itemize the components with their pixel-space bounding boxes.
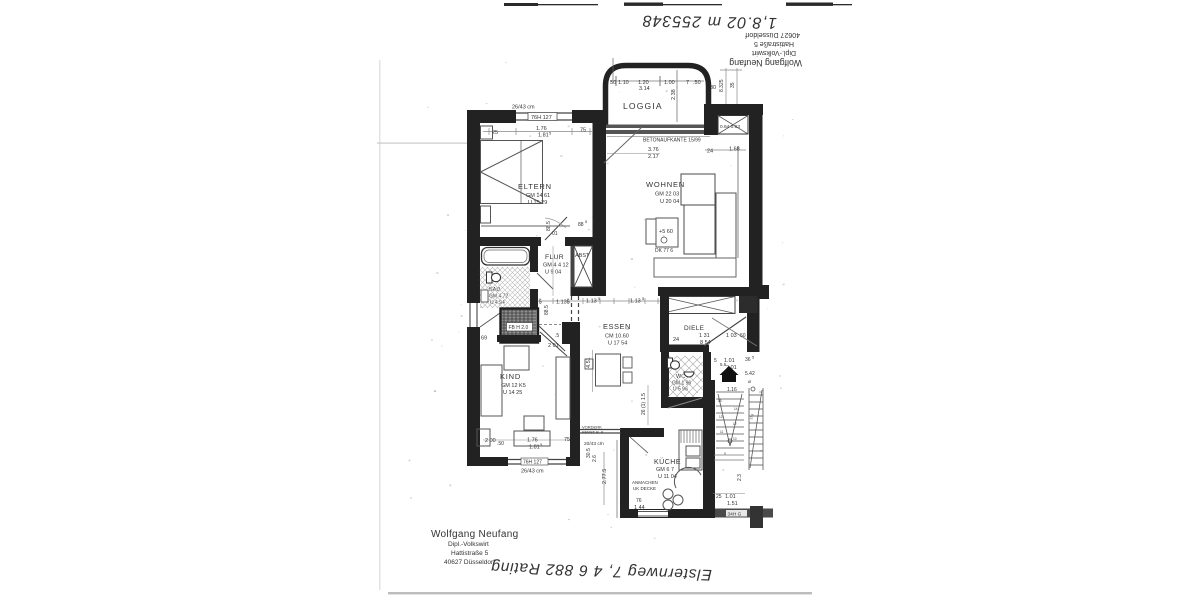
svg-text:FLUR: FLUR bbox=[545, 254, 564, 261]
svg-text:3.14: 3.14 bbox=[639, 86, 650, 92]
svg-text:ANMACHEN: ANMACHEN bbox=[632, 480, 658, 485]
svg-text:40627 Düsseldorf: 40627 Düsseldorf bbox=[745, 31, 800, 38]
svg-text:5: 5 bbox=[539, 300, 542, 306]
svg-text:1.13: 1.13 bbox=[586, 299, 597, 305]
svg-text:76: 76 bbox=[636, 498, 642, 504]
svg-text:88.5: 88.5 bbox=[544, 305, 550, 315]
svg-text:24: 24 bbox=[707, 149, 713, 155]
svg-text:8 54: 8 54 bbox=[700, 340, 711, 346]
svg-text:Wolfgang Neufang: Wolfgang Neufang bbox=[431, 529, 518, 540]
svg-text:26/43 cm: 26/43 cm bbox=[521, 469, 544, 475]
svg-text:Hattistraße 5: Hattistraße 5 bbox=[754, 40, 794, 47]
svg-text:9: 9 bbox=[724, 452, 726, 456]
svg-text:2.6: 2.6 bbox=[592, 455, 598, 462]
svg-text:Wolfgang Neufang: Wolfgang Neufang bbox=[729, 58, 802, 68]
svg-text:FENST B. K: FENST B. K bbox=[582, 430, 604, 435]
svg-text:.50: .50 bbox=[497, 441, 504, 447]
svg-text:1.00: 1.00 bbox=[664, 80, 675, 86]
svg-text:11: 11 bbox=[720, 430, 724, 434]
svg-text:26/43 cm: 26/43 cm bbox=[512, 105, 535, 111]
svg-text:8.325: 8.325 bbox=[719, 79, 725, 92]
svg-text:26 (1): 26 (1) bbox=[641, 402, 647, 415]
svg-text:0.64 0.63: 0.64 0.63 bbox=[720, 124, 740, 130]
svg-text:1.13: 1.13 bbox=[630, 299, 641, 305]
svg-text:BETONAUFKANTE 15/99: BETONAUFKANTE 15/99 bbox=[643, 138, 701, 144]
svg-text:88: 88 bbox=[578, 222, 584, 228]
svg-text:WOHNEN: WOHNEN bbox=[646, 180, 685, 189]
svg-text:5.42: 5.42 bbox=[745, 371, 755, 377]
svg-text:U 11 04: U 11 04 bbox=[658, 474, 677, 480]
svg-text:1.01: 1.01 bbox=[725, 494, 736, 500]
svg-text:7: 7 bbox=[686, 80, 689, 86]
svg-text:CM 10.60: CM 10.60 bbox=[605, 334, 629, 340]
svg-text:U 17 54: U 17 54 bbox=[608, 341, 627, 347]
svg-text:75: 75 bbox=[564, 437, 570, 443]
svg-text:1.5: 1.5 bbox=[641, 393, 647, 400]
svg-text:U 20 04: U 20 04 bbox=[660, 199, 679, 205]
svg-text:13: 13 bbox=[719, 415, 723, 419]
svg-text:50: 50 bbox=[610, 80, 616, 86]
svg-text:+5 60: +5 60 bbox=[659, 229, 673, 235]
svg-text:.50: .50 bbox=[693, 80, 701, 86]
svg-text:30: 30 bbox=[710, 85, 716, 91]
svg-text:24: 24 bbox=[673, 337, 679, 343]
svg-text:5: 5 bbox=[714, 358, 717, 364]
svg-text:1.01: 1.01 bbox=[724, 358, 735, 364]
svg-text:15: 15 bbox=[718, 399, 722, 403]
svg-text:20/43 cm: 20/43 cm bbox=[584, 441, 604, 447]
svg-text:U 14 25: U 14 25 bbox=[503, 390, 522, 396]
svg-text:34H G: 34H G bbox=[728, 512, 742, 518]
svg-text:3.76: 3.76 bbox=[648, 147, 659, 153]
svg-text:1.81: 1.81 bbox=[538, 133, 549, 139]
svg-text:69: 69 bbox=[481, 336, 487, 342]
svg-text:10: 10 bbox=[733, 437, 737, 441]
svg-text:01: 01 bbox=[552, 231, 558, 237]
svg-text:1.76: 1.76 bbox=[527, 438, 538, 444]
svg-text:KÜCHE: KÜCHE bbox=[654, 458, 681, 466]
svg-text:1.51: 1.51 bbox=[727, 501, 738, 507]
svg-text:2.77.5: 2.77.5 bbox=[602, 469, 608, 484]
svg-text:50: 50 bbox=[740, 333, 746, 339]
svg-text:2.38: 2.38 bbox=[671, 89, 677, 100]
svg-text:1.76: 1.76 bbox=[536, 126, 547, 132]
svg-text:12: 12 bbox=[733, 422, 737, 426]
svg-text:1 44: 1 44 bbox=[634, 505, 645, 511]
svg-text:.5: .5 bbox=[555, 333, 559, 339]
svg-text:1.10: 1.10 bbox=[618, 80, 629, 86]
svg-text:1 03: 1 03 bbox=[726, 333, 737, 339]
svg-text:Dipl.-Volkswirt: Dipl.-Volkswirt bbox=[752, 49, 796, 56]
svg-text:25: 25 bbox=[716, 494, 722, 500]
svg-text:ABST: ABST bbox=[575, 253, 590, 259]
svg-text:LOGGIA: LOGGIA bbox=[623, 101, 663, 111]
svg-text:FB H 2.0: FB H 2.0 bbox=[509, 325, 529, 331]
svg-text:2.17: 2.17 bbox=[648, 154, 659, 160]
svg-text:35: 35 bbox=[730, 82, 736, 88]
svg-text:GM 4 4 12: GM 4 4 12 bbox=[543, 263, 569, 269]
svg-text:⌀: ⌀ bbox=[748, 379, 751, 385]
svg-text:75: 75 bbox=[580, 128, 586, 134]
svg-text:1 31: 1 31 bbox=[699, 333, 710, 339]
svg-text:1.81: 1.81 bbox=[529, 445, 540, 451]
svg-text:GM 6 7: GM 6 7 bbox=[656, 467, 674, 473]
svg-text:Dipl.-Volkswirt: Dipl.-Volkswirt bbox=[448, 541, 489, 548]
svg-text:14: 14 bbox=[734, 407, 738, 411]
svg-text:Hattistraße 5: Hattistraße 5 bbox=[451, 550, 489, 557]
svg-text:GM 14 61: GM 14 61 bbox=[526, 193, 550, 199]
svg-text:ESSEN: ESSEN bbox=[603, 322, 631, 331]
svg-text:UK DECKE: UK DECKE bbox=[633, 486, 656, 491]
svg-text:76H 127: 76H 127 bbox=[531, 115, 552, 121]
svg-text:GM 12 K5: GM 12 K5 bbox=[501, 383, 526, 389]
svg-text:GM 22 03: GM 22 03 bbox=[655, 192, 679, 198]
svg-text:DK 77 6: DK 77 6 bbox=[655, 248, 673, 254]
svg-text:KIND: KIND bbox=[500, 372, 521, 381]
svg-text:DIELE: DIELE bbox=[684, 325, 705, 332]
svg-text:1,8.02 m 255348: 1,8.02 m 255348 bbox=[642, 12, 777, 31]
svg-text:40627 Düsseldorf: 40627 Düsseldorf bbox=[444, 559, 495, 566]
svg-text:ELTERN: ELTERN bbox=[518, 182, 552, 191]
svg-text:36: 36 bbox=[745, 357, 751, 363]
svg-text:1.135: 1.135 bbox=[556, 300, 570, 306]
svg-text:2.3: 2.3 bbox=[737, 474, 743, 481]
svg-text:76H 127: 76H 127 bbox=[523, 460, 542, 466]
